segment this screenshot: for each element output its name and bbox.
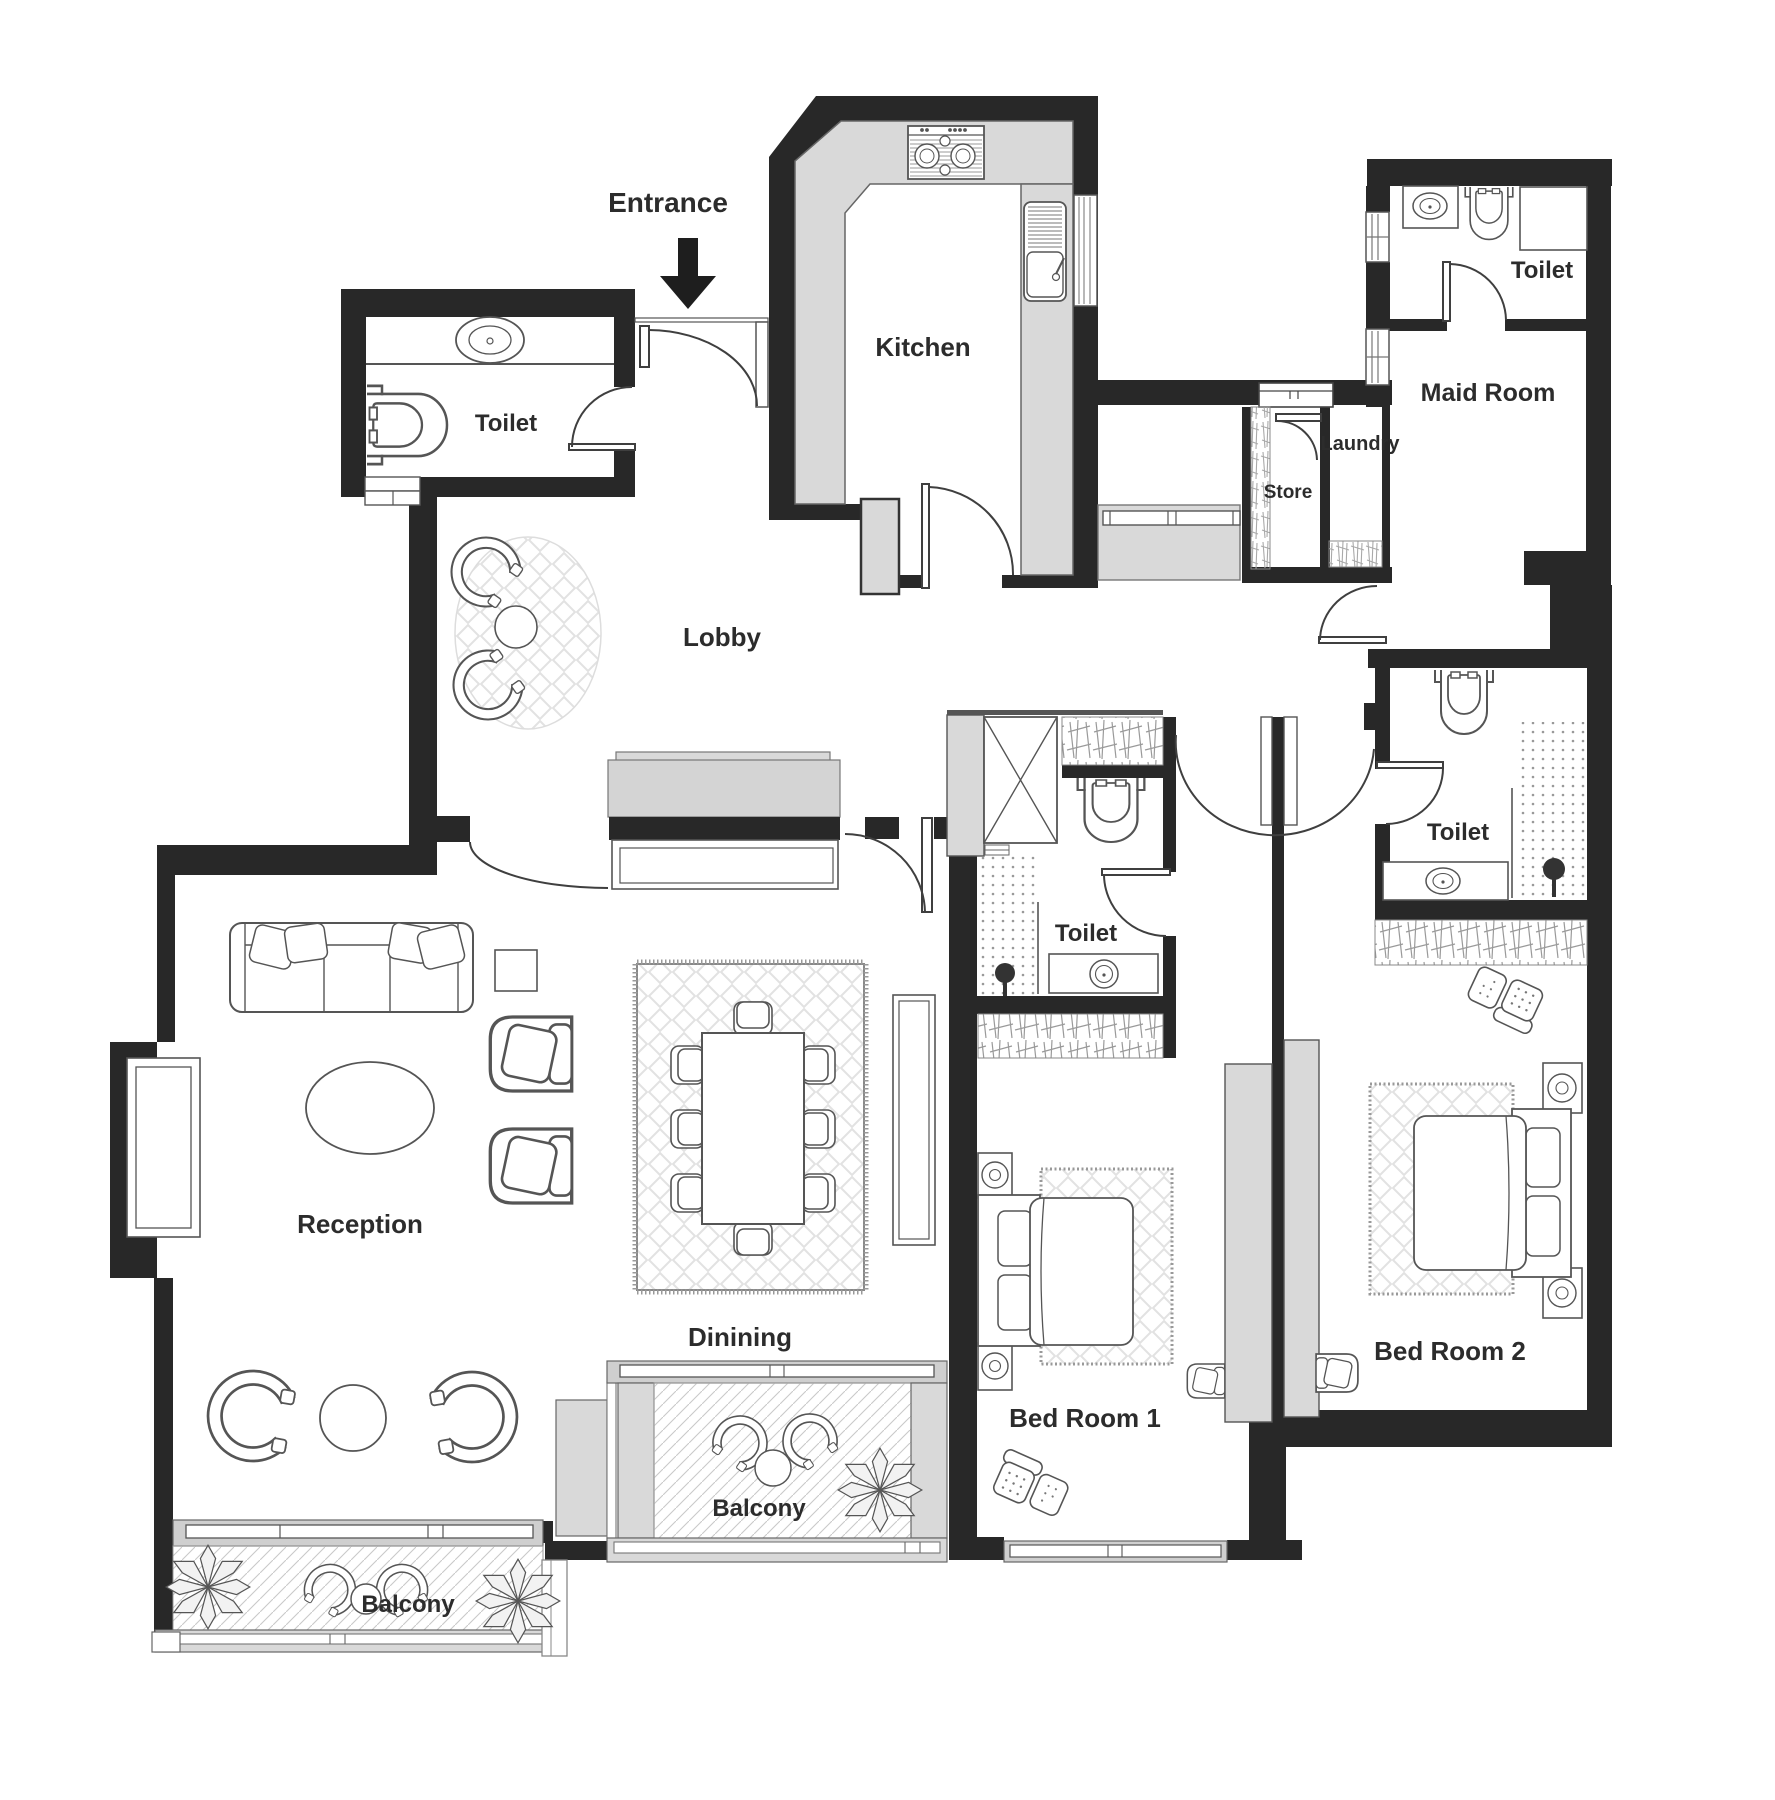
svg-text:Bed Room 1: Bed Room 1 bbox=[1009, 1403, 1161, 1433]
svg-text:Toilet: Toilet bbox=[1511, 257, 1573, 284]
svg-text:Reception: Reception bbox=[297, 1209, 423, 1239]
svg-text:Maid Room: Maid Room bbox=[1421, 379, 1556, 407]
svg-text:Dinining: Dinining bbox=[688, 1322, 792, 1352]
svg-text:Lobby: Lobby bbox=[683, 622, 762, 652]
svg-text:Balcony: Balcony bbox=[361, 1591, 455, 1618]
svg-text:Entrance: Entrance bbox=[608, 187, 728, 218]
svg-text:Toilet: Toilet bbox=[1427, 819, 1489, 846]
svg-text:Toilet: Toilet bbox=[475, 410, 537, 437]
svg-text:Balcony: Balcony bbox=[712, 1495, 806, 1522]
svg-text:Laundry: Laundry bbox=[1321, 433, 1401, 455]
svg-text:Bed Room 2: Bed Room 2 bbox=[1374, 1336, 1526, 1366]
svg-text:Store: Store bbox=[1264, 482, 1313, 503]
svg-text:Toilet: Toilet bbox=[1055, 920, 1117, 947]
svg-text:Kitchen: Kitchen bbox=[875, 332, 970, 362]
